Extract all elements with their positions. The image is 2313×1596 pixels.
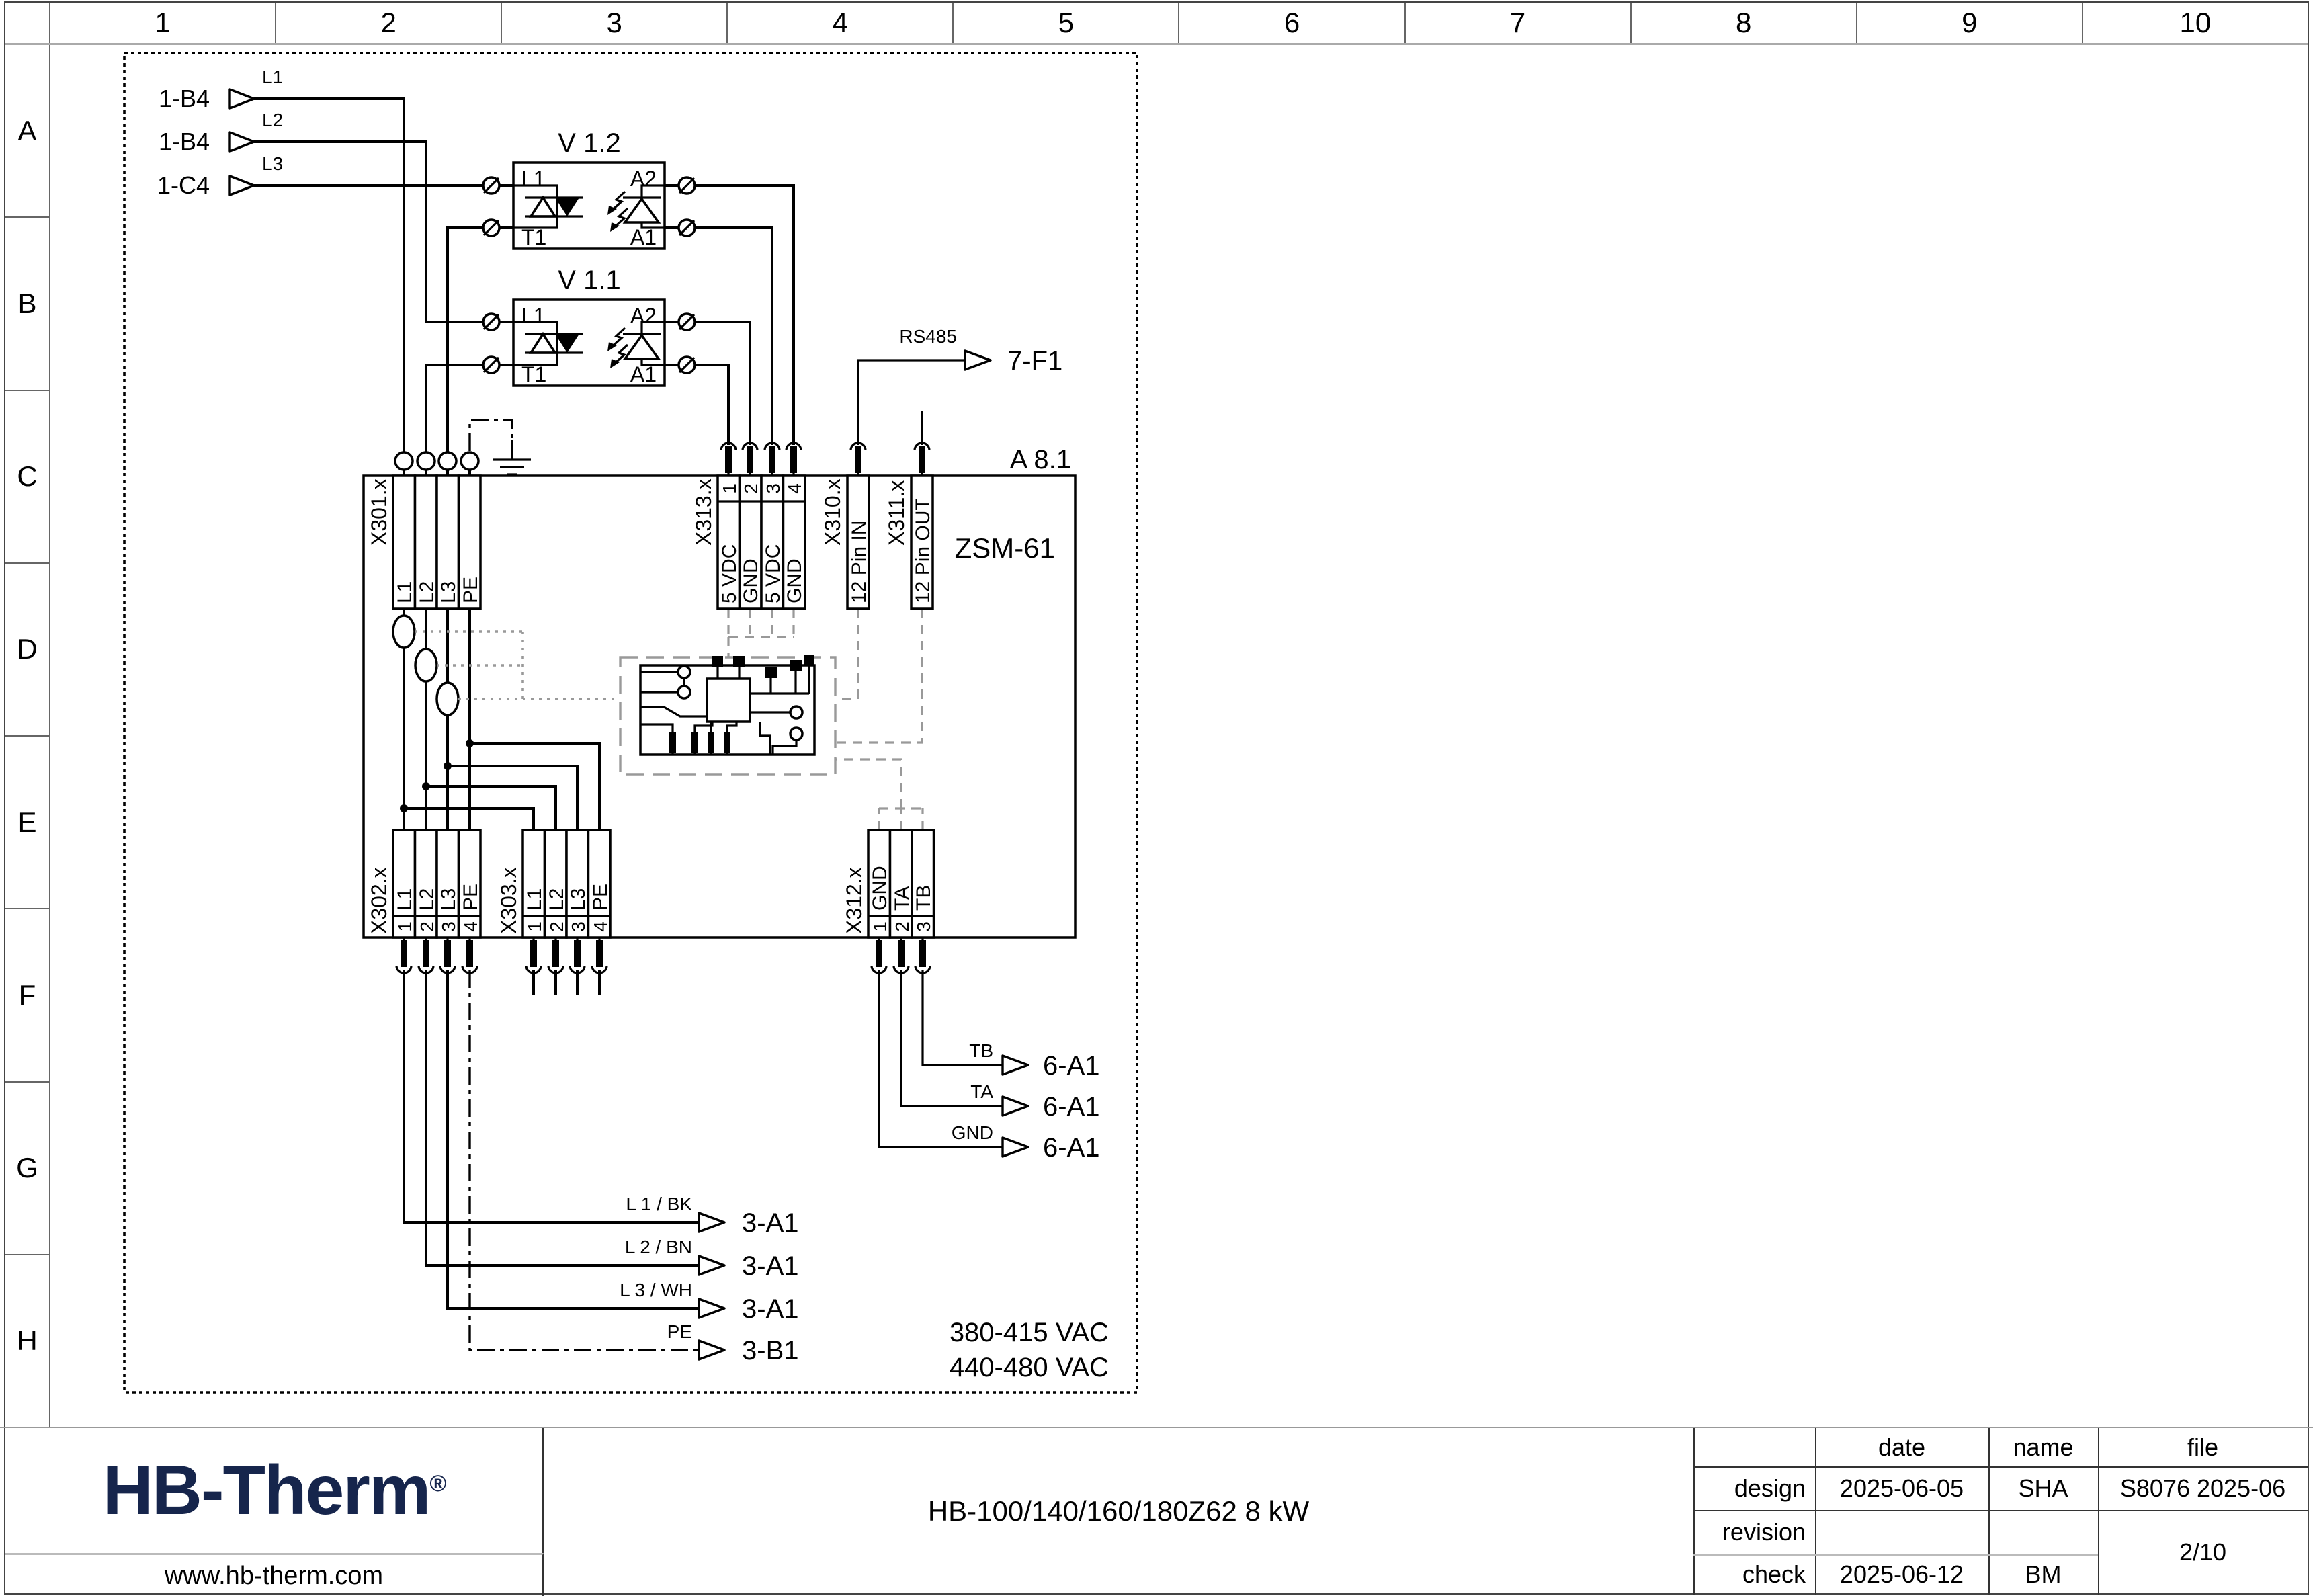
title-block: HB-Therm® www.hb-therm.com HB-100/140/16… (0, 1427, 2313, 1596)
pin-label: 12 Pin IN (848, 521, 870, 603)
wire-out-l3 (448, 970, 699, 1308)
signal-in-arrow-icon (230, 132, 254, 151)
block-label: X313.x (691, 478, 716, 546)
earth-icon (493, 440, 531, 474)
input-l3: 1-C4 L3 (157, 153, 513, 199)
row-label-design: design (1693, 1466, 1815, 1510)
plug-icon (396, 937, 411, 973)
pin-number: 1 (870, 921, 890, 932)
triac-module-v11: V 1.1 L1 A2 T1 A1 (426, 265, 750, 452)
plug-icon (462, 937, 477, 973)
plug-icon (915, 443, 929, 476)
module-title: V 1.1 (558, 265, 620, 295)
grid-row-label: D (5, 564, 49, 737)
plug-icon (894, 937, 909, 973)
plug-icon (872, 937, 886, 973)
grid-row-label: G (5, 1083, 49, 1255)
table-header-file: file (2098, 1428, 2308, 1466)
signal-out-arrow-icon (699, 1213, 724, 1232)
wire-l2 (254, 142, 513, 322)
pin-label: L1 (523, 888, 546, 911)
rs485-label: RS485 (899, 326, 957, 347)
terminal-block-x312: X312.x GND TA TB 1 2 3 (842, 830, 935, 937)
registered-trademark-icon: ® (429, 1471, 445, 1497)
grid-row-label: B (5, 218, 49, 390)
pin-number: 1 (719, 483, 740, 494)
terminal-a2: A2 (630, 167, 657, 191)
plug-icon (526, 937, 541, 973)
pin-number: 2 (741, 483, 761, 494)
x313-signal-net (728, 609, 794, 657)
table-header-name: name (1988, 1428, 2098, 1466)
pin-label: TA (891, 886, 913, 911)
block-label: X311.x (884, 480, 909, 546)
grid-column-label: 7 (1406, 3, 1632, 43)
grid-row-label: F (5, 909, 49, 1082)
plug-icon (743, 443, 757, 476)
wire-label: PE (667, 1321, 692, 1342)
wire-label: TA (970, 1081, 993, 1102)
block-label: X310.x (821, 478, 845, 546)
target-ref: 3-A1 (742, 1294, 799, 1324)
plug-icon (440, 937, 455, 973)
grid-column-label: 4 (728, 3, 954, 43)
plug-icon (765, 443, 780, 476)
pin-label: GND (740, 558, 762, 603)
terminal-block-x303: X303.x L1 L2 L3 PE 1 2 3 4 (497, 830, 612, 937)
target-ref: 3-B1 (742, 1336, 799, 1366)
pin-label: L3 (437, 888, 460, 911)
pin-number: 3 (763, 483, 784, 494)
input-ref: 1-B4 (159, 128, 210, 155)
ct-sensor (437, 683, 458, 715)
wire-label: GND (952, 1122, 993, 1143)
signal-in-arrow-icon (230, 89, 254, 108)
target-ref: 6-A1 (1043, 1133, 1100, 1163)
check-name: BM (1988, 1554, 2098, 1595)
pin-number: 1 (394, 921, 415, 932)
bottom-plug-connectors (396, 937, 930, 973)
voltage-note-1: 380-415 VAC (950, 1318, 1109, 1347)
pin-label: L1 (394, 888, 416, 911)
pin-number: 3 (568, 921, 589, 932)
rs485-link: RS485 7-F1 (858, 326, 1062, 445)
terminal-a2: A2 (630, 304, 657, 328)
pin-label: 5 VDC (762, 544, 784, 603)
company-logo: HB-Therm® (5, 1428, 544, 1553)
pin-number: 2 (417, 921, 437, 932)
module-title: V 1.2 (558, 128, 620, 158)
signal-in-arrow-icon (230, 176, 254, 195)
pin-label: GND (869, 866, 891, 911)
column-header: 1 2 3 4 5 6 7 8 9 10 (5, 3, 2308, 45)
pin-label: TB (913, 885, 935, 911)
terminal-block-x313: X313.x 1 2 3 4 5 VDC GND 5 VDC GND (691, 476, 806, 609)
input-ref: 1-C4 (157, 171, 210, 199)
phase-label: L3 (262, 153, 283, 174)
pin-number: 3 (438, 921, 459, 932)
pin-label: L1 (394, 581, 416, 603)
drawing-border (124, 53, 1137, 1392)
x311-signal-net (835, 609, 922, 743)
signal-out-arrow-icon (699, 1341, 724, 1359)
pin-number: 3 (913, 921, 934, 932)
signal-out-arrow-icon (699, 1256, 724, 1275)
pin-number: 4 (590, 921, 611, 932)
pin-label: L2 (416, 888, 438, 911)
page-number: 2/10 (2098, 1510, 2308, 1595)
wire-label: L 3 / WH (620, 1279, 692, 1300)
board-zsm61: A 8.1 ZSM-61 (364, 445, 1075, 937)
pin-label: L2 (546, 888, 568, 911)
grid-row-label: E (5, 737, 49, 909)
phase-label: L1 (262, 67, 283, 87)
output-tb: TB 6-A1 (923, 970, 1100, 1081)
wire-rs485 (858, 360, 965, 445)
plug-icon (721, 443, 736, 476)
wire-label: L 1 / BK (626, 1193, 692, 1214)
pin-label: L3 (567, 888, 589, 911)
input-l2: 1-B4 L2 (159, 110, 513, 322)
branch-wires (404, 743, 599, 830)
plug-icon (851, 443, 866, 476)
check-date: 2025-06-12 (1815, 1554, 1988, 1595)
pin-number: 1 (524, 921, 545, 932)
design-name: SHA (1988, 1466, 2098, 1510)
output-l1-bk: L 1 / BK 3-A1 (404, 970, 799, 1238)
phase-label: L2 (262, 110, 283, 130)
pin-label: L3 (437, 581, 460, 603)
x301-entry-circles (395, 452, 478, 476)
block-label: X302.x (367, 867, 391, 934)
logo-wordmark: HB-Therm (103, 1452, 430, 1529)
grid-column-label: 9 (1857, 3, 2083, 43)
voltage-note-2: 440-480 VAC (950, 1353, 1109, 1382)
grid-row-label: H (5, 1255, 49, 1427)
plug-icon (548, 937, 563, 973)
pin-label: 5 VDC (718, 544, 741, 603)
grid-column-label: 1 (50, 3, 276, 43)
terminal-block-x302: X302.x L1 L2 L3 PE 1 2 3 4 (367, 830, 482, 937)
grid-row-label: A (5, 45, 49, 218)
row-label-revision: revision (1693, 1510, 1815, 1554)
grid-row-label: C (5, 391, 49, 564)
terminal-block-x311: X311.x 12 Pin OUT (884, 476, 934, 609)
pin-number: 4 (460, 921, 481, 932)
input-ref: 1-B4 (159, 85, 210, 112)
pin-number: 4 (784, 483, 805, 494)
board-name: ZSM-61 (955, 532, 1055, 564)
row-rail: A B C D E F G H (5, 45, 50, 1427)
plug-icon (592, 937, 607, 973)
company-website: www.hb-therm.com (5, 1553, 544, 1596)
schematic-sheet: 1-B4 L1 1-B4 L2 1-C4 L3 V 1.2 L1 A2 T1 (0, 0, 2313, 1596)
wire-label: TB (969, 1040, 993, 1061)
terminal-l1: L1 (521, 304, 546, 328)
pe-earth (470, 420, 531, 474)
file-value: S8076 2025-06 (2098, 1466, 2308, 1510)
table-header-date: date (1815, 1428, 1988, 1466)
target-ref: 6-A1 (1043, 1051, 1100, 1081)
row-label-check: check (1693, 1554, 1815, 1595)
ct-sensor (393, 616, 415, 648)
pcb-pictogram (620, 655, 835, 775)
design-date: 2025-06-05 (1815, 1466, 1988, 1510)
grid-column-label: 2 (276, 3, 502, 43)
terminal-l1: L1 (521, 167, 546, 191)
block-label: X312.x (842, 867, 866, 934)
pin-label: GND (784, 558, 806, 603)
terminal-block-x301: X301.x L1 L2 L3 PE (367, 476, 482, 609)
output-ta: TA 6-A1 (901, 970, 1100, 1122)
plug-icon (786, 443, 801, 476)
signal-out-arrow-icon (1003, 1056, 1028, 1075)
signal-out-arrow-icon (965, 351, 991, 370)
pin-number: 2 (546, 921, 567, 932)
grid-corner-cell (5, 3, 50, 43)
block-label: X303.x (497, 867, 521, 934)
board-ref: A 8.1 (1010, 445, 1071, 474)
x310-signal-net (835, 609, 858, 699)
wire-v12-t1 (448, 228, 513, 452)
target-ref: 3-A1 (742, 1208, 799, 1238)
plug-icon (419, 937, 433, 973)
target-ref: 3-A1 (742, 1251, 799, 1281)
rs485-target: 7-F1 (1007, 346, 1062, 376)
grid-column-label: 5 (954, 3, 1179, 43)
ct-sensor (415, 649, 437, 681)
top-plug-connectors (721, 443, 929, 476)
signal-out-arrow-icon (1003, 1097, 1028, 1116)
terminal-block-x310: X310.x 12 Pin IN (821, 476, 870, 609)
document-title: HB-100/140/160/180Z62 8 kW (544, 1428, 1693, 1595)
pin-label: 12 Pin OUT (912, 498, 934, 603)
wiring-diagram: 1-B4 L1 1-B4 L2 1-C4 L3 V 1.2 L1 A2 T1 (0, 0, 2313, 1596)
pin-label: PE (589, 884, 612, 911)
target-ref: 6-A1 (1043, 1092, 1100, 1122)
pin-label: L2 (416, 581, 438, 603)
pin-label: PE (460, 577, 482, 603)
pin-number: 2 (892, 921, 913, 932)
board-phase-wires (404, 609, 470, 830)
wire-v11-a2 (665, 322, 750, 445)
grid-column-label: 10 (2083, 3, 2308, 43)
plug-icon (915, 937, 930, 973)
x312-signal-net (835, 759, 923, 830)
x303-stub-wires (534, 970, 599, 995)
grid-column-label: 8 (1632, 3, 1857, 43)
wire-l1 (254, 99, 404, 452)
signal-out-arrow-icon (699, 1299, 724, 1318)
hb-therm-logo: HB-Therm® (103, 1451, 446, 1531)
plug-icon (570, 937, 585, 973)
wire-label: L 2 / BN (625, 1236, 692, 1257)
grid-column-label: 6 (1179, 3, 1405, 43)
wire-v11-a1 (665, 365, 728, 445)
pe-dashdot (470, 420, 512, 451)
wire-v12-a1 (665, 228, 772, 445)
block-label: X301.x (367, 478, 391, 546)
grid-column-label: 3 (502, 3, 728, 43)
signal-out-arrow-icon (1003, 1138, 1028, 1157)
pin-label: PE (460, 884, 482, 911)
pcb-ic (707, 679, 750, 722)
